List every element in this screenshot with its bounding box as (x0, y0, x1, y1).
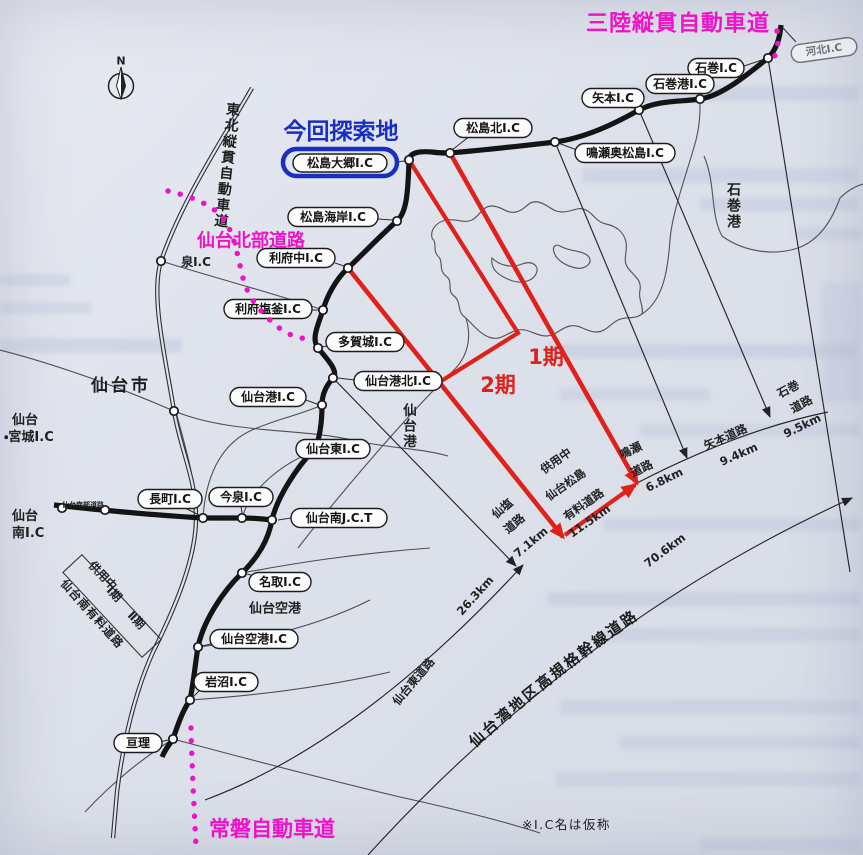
ic-bubble-watari: 亘理 (114, 734, 162, 753)
phase-ii-label: Ⅱ期 (125, 608, 148, 631)
map-canvas: 河北I.C 石巻I.C 石巻港I.C 矢本I.C 松島北I.C 鳴瀬奥松島I.C… (0, 0, 863, 855)
ic-node (199, 514, 207, 522)
svg-text:仙台港I.C: 仙台港I.C (240, 389, 295, 404)
ic-bubble-tagajo: 多賀城I.C (326, 333, 404, 352)
minor-road-label: 仙台南部道路 (61, 500, 105, 509)
ic-node (268, 516, 276, 524)
izumi-ic-label: 泉I.C (181, 254, 211, 269)
ic-bubble-iwanuma: 岩沼I.C (194, 673, 258, 692)
svg-text:松島大郷I.C: 松島大郷I.C (307, 155, 373, 170)
svg-text:仙台南J.C.T: 仙台南J.C.T (305, 510, 373, 525)
sendai-minami-ic-label: 仙台 (11, 508, 38, 524)
ic-bubble-yamoto: 矢本I.C (582, 89, 644, 108)
svg-text:松島海岸I.C: 松島海岸I.C (300, 209, 366, 224)
ic-node (319, 306, 327, 314)
ic-bubble-sendai-airport: 仙台空港I.C (210, 630, 298, 649)
compass-n-label: N (116, 55, 125, 68)
sanriku-expressway-title: 三陸縦貫自動車道 (586, 11, 770, 37)
search-site-highlight: 松島大郷I.C (283, 149, 397, 176)
ic-bubble-ishinomaki-ko: 石巻港I.C (646, 75, 714, 94)
svg-text:鳴瀬奥松島I.C: 鳴瀬奥松島I.C (586, 145, 664, 160)
sendai-city-label: 仙台市 (90, 375, 151, 396)
search-site-title: 今回探索地 (284, 118, 399, 145)
ic-node (329, 374, 337, 382)
ic-node (696, 95, 704, 103)
svg-text:仙台港北I.C: 仙台港北I.C (364, 373, 431, 388)
ic-bubble-natori: 名取I.C (249, 573, 311, 592)
svg-text:仙台東I.C: 仙台東I.C (305, 441, 360, 456)
jct-bubble-sendai-minami: 仙台南J.C.T (291, 509, 387, 528)
sendai-miyagi-ic-label2: ・宮城I.C (4, 429, 54, 445)
matsushima-status: 供用中 (537, 445, 574, 477)
footnote: ※I.C名は仮称 (522, 817, 611, 832)
construction-status-box: 供用中 Ⅰ期 Ⅱ期 仙台南有料道路 (57, 555, 161, 658)
ic-node (764, 54, 772, 62)
ic-node (238, 514, 246, 522)
svg-text:名取I.C: 名取I.C (259, 574, 301, 589)
higashi-name: 仙台東道路 (389, 654, 438, 708)
svg-text:矢本I.C: 矢本I.C (592, 90, 634, 105)
svg-text:利府中I.C: 利府中I.C (269, 250, 323, 265)
ic-bubble-matsushima-osato: 松島大郷I.C (293, 154, 387, 172)
ic-node (344, 264, 352, 272)
ic-bubble-imaizumi: 今泉I.C (209, 488, 273, 507)
svg-text:長町I.C: 長町I.C (149, 491, 191, 506)
ic-bubble-sendai-higashi: 仙台東I.C (296, 440, 370, 459)
tohoku-expressway-line (113, 88, 252, 838)
sendai-minami-ic-label2: 南I.C (12, 525, 44, 541)
svg-text:仙台空港I.C: 仙台空港I.C (220, 631, 287, 646)
scanned-road-map: 河北I.C 石巻I.C 石巻港I.C 矢本I.C 松島北I.C 鳴瀬奥松島I.C… (0, 0, 863, 855)
svg-text:利府塩釜I.C: 利府塩釜I.C (235, 301, 301, 316)
svg-text:亘理: 亘理 (126, 736, 150, 750)
svg-text:石巻I.C: 石巻I.C (694, 60, 737, 75)
naruse-name1: 鳴瀬 (617, 439, 644, 462)
ishinomaki-name2: 道路 (788, 392, 815, 415)
svg-text:今泉I.C: 今泉I.C (220, 489, 262, 504)
hokubu-road-title: 仙台北部道路 (196, 230, 306, 252)
compass-icon: N (109, 55, 134, 100)
svg-text:多賀城I.C: 多賀城I.C (338, 334, 392, 349)
ic-bubble-sendai-kohoku: 仙台港北I.C (354, 372, 442, 391)
svg-text:松島北I.C: 松島北I.C (466, 120, 520, 135)
ic-node (446, 149, 454, 157)
ic-node (393, 217, 401, 225)
ic-bubble-kahoku: 河北I.C (790, 36, 858, 63)
sendai-airport-label: 仙台空港 (248, 601, 302, 617)
sendai-port-label: 仙台港 (400, 402, 418, 450)
ic-bubble-nagamachi: 長町I.C (138, 490, 202, 509)
ic-node (186, 696, 194, 704)
ic-node (314, 344, 322, 352)
svg-text:岩沼I.C: 岩沼I.C (204, 674, 247, 689)
ic-bubble-matsushima-kaigan: 松島海岸I.C (288, 208, 378, 227)
joban-dotted-line (191, 728, 196, 846)
higashi-km: 26.3km (454, 573, 497, 618)
phase1-label: 1期 (528, 345, 564, 369)
ic-node (194, 643, 202, 651)
ic-bubble-matsushima-kita: 松島北I.C (454, 119, 532, 138)
ic-node (318, 401, 326, 409)
sendai-miyagi-ic-label: 仙台 (11, 412, 38, 428)
ic-node (169, 735, 177, 743)
joban-expressway-title: 常磐自動車道 (209, 817, 335, 841)
ic-node (170, 407, 178, 415)
svg-text:仙台湾地区高規格幹線道路: 仙台湾地区高規格幹線道路 (465, 606, 642, 751)
ic-node (238, 569, 246, 577)
bay-corridor-km: 70.6km (641, 530, 688, 570)
ic-bubble-naruse-okumatsushima: 鳴瀬奥松島I.C (575, 144, 675, 163)
bay-corridor-label: 仙台湾地区高規格幹線道路 (465, 606, 642, 751)
ic-bubble-rifu-shiogama: 利府塩釜I.C (224, 300, 312, 319)
ishinomaki-port-label: 石巻港 (725, 182, 742, 230)
ic-node (405, 156, 413, 164)
ic-node (157, 257, 165, 265)
ic-node (551, 138, 559, 146)
phase2-label: 2期 (480, 373, 516, 397)
ic-bubble-sendai-ko: 仙台港I.C (230, 388, 306, 407)
svg-text:石巻港I.C: 石巻港I.C (652, 76, 707, 91)
